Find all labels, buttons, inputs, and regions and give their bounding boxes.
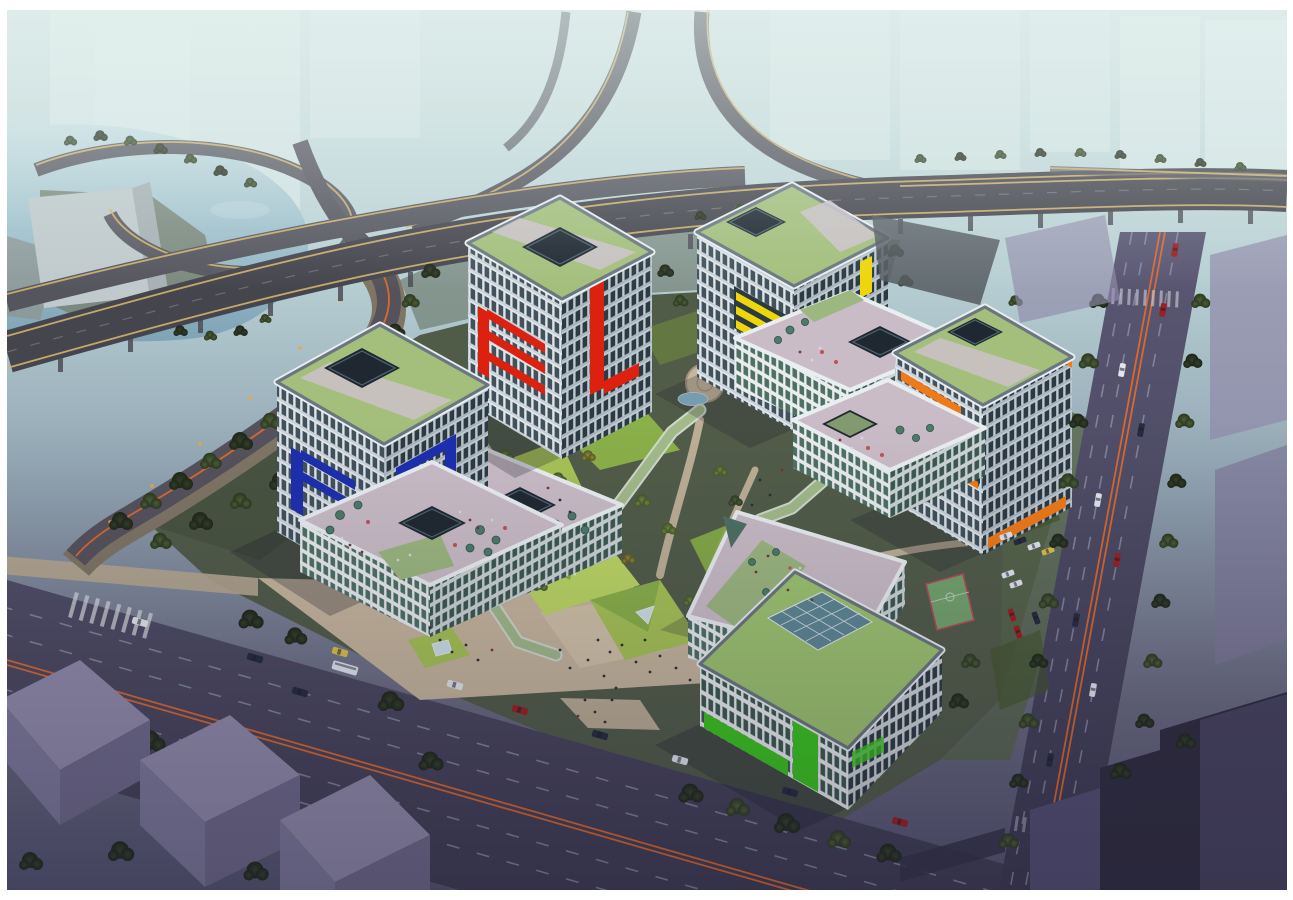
- dusk-overlay: [0, 420, 1293, 900]
- mist-overlay: [0, 0, 1293, 290]
- rendering-canvas: [0, 0, 1293, 900]
- aerial-rendering: [0, 0, 1293, 900]
